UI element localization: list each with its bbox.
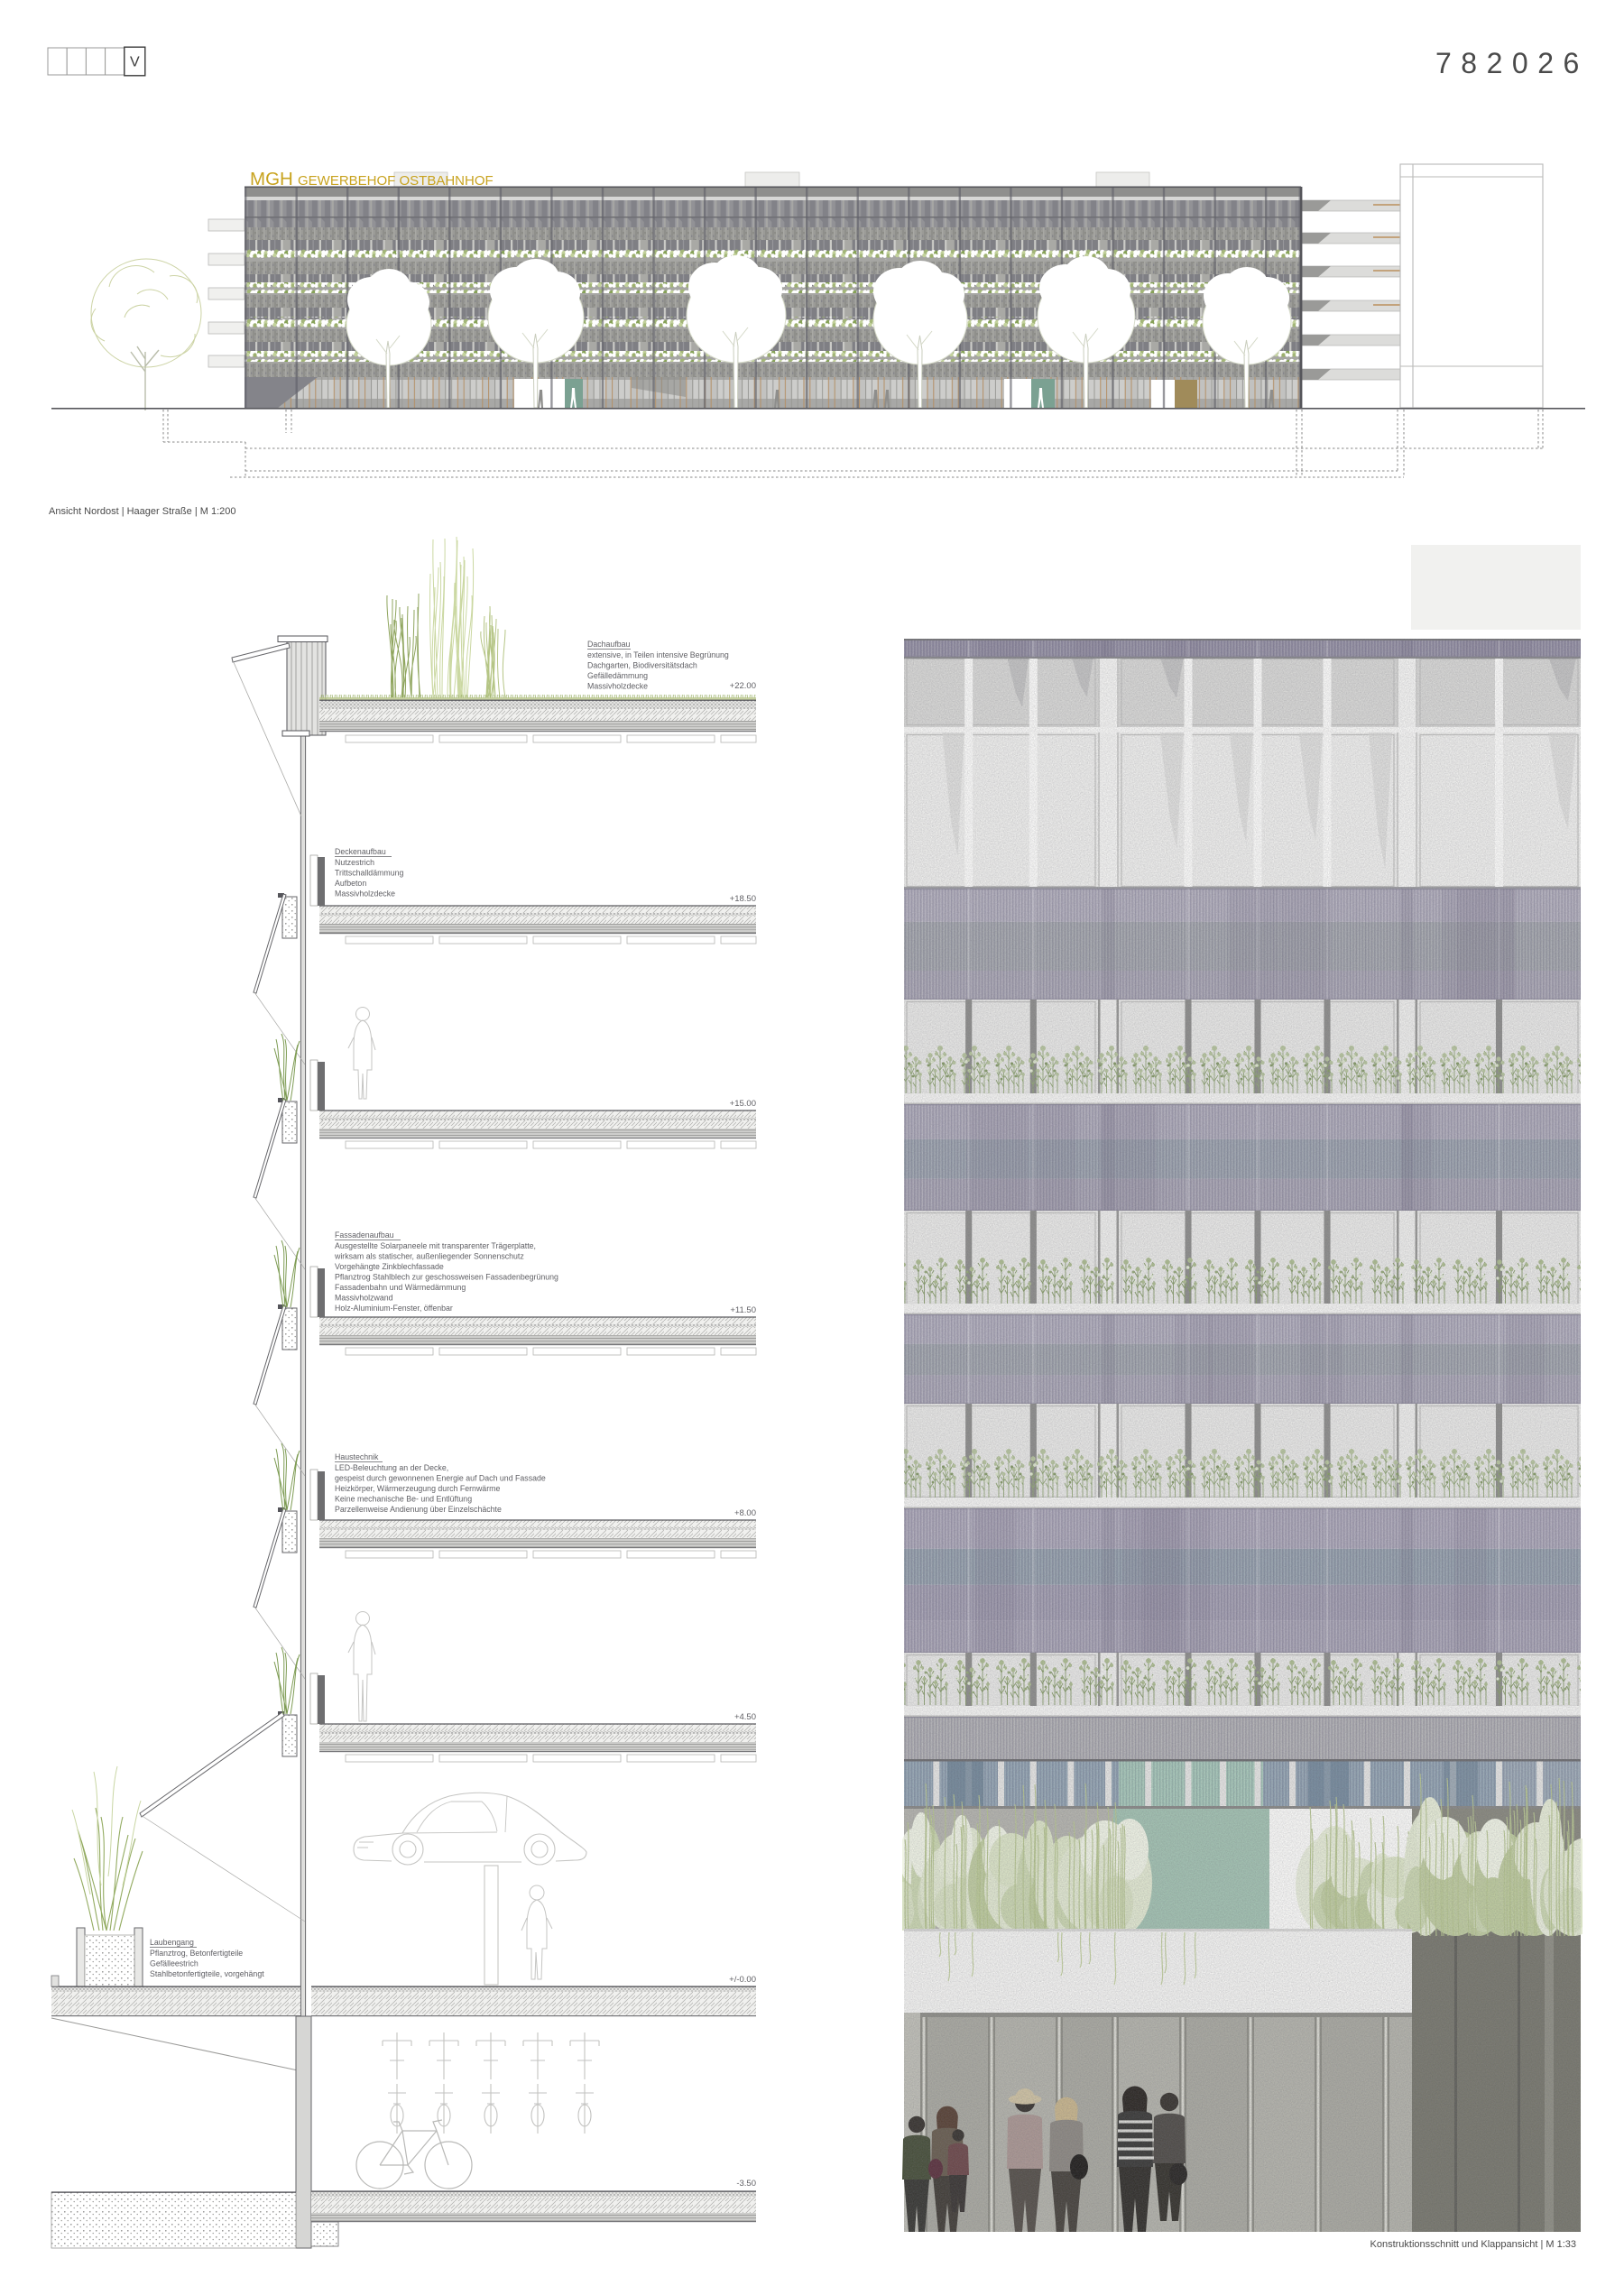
svg-text:Dachgarten, Biodiversitätsdach: Dachgarten, Biodiversitätsdach [587, 661, 697, 670]
svg-text:Keine mechanische Be- und Entl: Keine mechanische Be- und Entlüftung [335, 1495, 472, 1504]
svg-text:Gefälledämmung: Gefälledämmung [587, 671, 648, 680]
svg-text:Pflanztrog, Betonfertigteile: Pflanztrog, Betonfertigteile [150, 1949, 243, 1958]
svg-text:GEWERBEHOF OSTBAHNHOF: GEWERBEHOF OSTBAHNHOF [298, 173, 494, 189]
svg-text:LED-Beleuchtung an der Decke,: LED-Beleuchtung an der Decke, [335, 1463, 448, 1472]
svg-text:Nutzestrich: Nutzestrich [335, 858, 374, 867]
svg-text:Massivholzdecke: Massivholzdecke [335, 889, 395, 899]
svg-text:Heizkörper, Wärmerzeugung durc: Heizkörper, Wärmerzeugung durch Fernwärm… [335, 1484, 500, 1493]
svg-text:V: V [130, 55, 140, 70]
svg-text:+11.50: +11.50 [730, 1305, 756, 1315]
svg-text:Fassadenaufbau: Fassadenaufbau [335, 1230, 394, 1240]
svg-text:Massivholzdecke: Massivholzdecke [587, 682, 648, 691]
svg-text:+/-0.00: +/-0.00 [729, 1975, 756, 1985]
svg-text:+15.00: +15.00 [730, 1099, 756, 1109]
svg-text:Laubengang: Laubengang [150, 1938, 194, 1947]
svg-text:Haustechnik: Haustechnik [335, 1452, 379, 1461]
svg-text:Fassadenbahn und Wärmedämmung: Fassadenbahn und Wärmedämmung [335, 1283, 466, 1292]
svg-text:Ausgestellte Solarpaneele mit: Ausgestellte Solarpaneele mit transparen… [335, 1241, 536, 1250]
svg-text:Stahlbetonfertigteile, vorgehä: Stahlbetonfertigteile, vorgehängt [150, 1969, 264, 1978]
svg-text:wirksam als statischer, außenl: wirksam als statischer, außenliegender S… [334, 1252, 524, 1261]
svg-text:782026: 782026 [1435, 47, 1589, 79]
svg-text:+4.50: +4.50 [734, 1712, 756, 1722]
svg-text:Dachaufbau: Dachaufbau [587, 640, 631, 649]
svg-text:Parzellenweise Andienung über: Parzellenweise Andienung über Einzelschä… [335, 1505, 502, 1514]
svg-text:Gefälleestrich: Gefälleestrich [150, 1959, 198, 1968]
svg-text:Massivholzwand: Massivholzwand [335, 1294, 393, 1303]
svg-text:Ansicht Nordost | Haager Straß: Ansicht Nordost | Haager Straße | M 1:20… [49, 506, 235, 517]
svg-text:+18.50: +18.50 [730, 894, 756, 904]
svg-text:Deckenaufbau: Deckenaufbau [335, 847, 386, 856]
svg-text:+22.00: +22.00 [730, 681, 756, 691]
svg-text:Vorgehängte Zinkblechfassade: Vorgehängte Zinkblechfassade [335, 1262, 444, 1271]
svg-text:-3.50: -3.50 [736, 2179, 756, 2189]
svg-text:extensive, in Teilen intensive: extensive, in Teilen intensive Begrünung [587, 650, 729, 659]
svg-text:Trittschalldämmung: Trittschalldämmung [335, 869, 404, 878]
svg-text:Holz-Aluminium-Fenster, öffenb: Holz-Aluminium-Fenster, öffenbar [335, 1304, 453, 1313]
svg-text:Aufbeton: Aufbeton [335, 879, 366, 888]
svg-text:Konstruktionsschnitt und Klapp: Konstruktionsschnitt und Klappansicht | … [1370, 2239, 1577, 2250]
svg-text:gespeist durch gewonnenen Ener: gespeist durch gewonnenen Energie auf Da… [335, 1474, 546, 1483]
svg-text:Pflanztrog Stahlblech zur gesc: Pflanztrog Stahlblech zur geschossweisen… [335, 1273, 558, 1282]
svg-text:+8.00: +8.00 [734, 1508, 756, 1518]
